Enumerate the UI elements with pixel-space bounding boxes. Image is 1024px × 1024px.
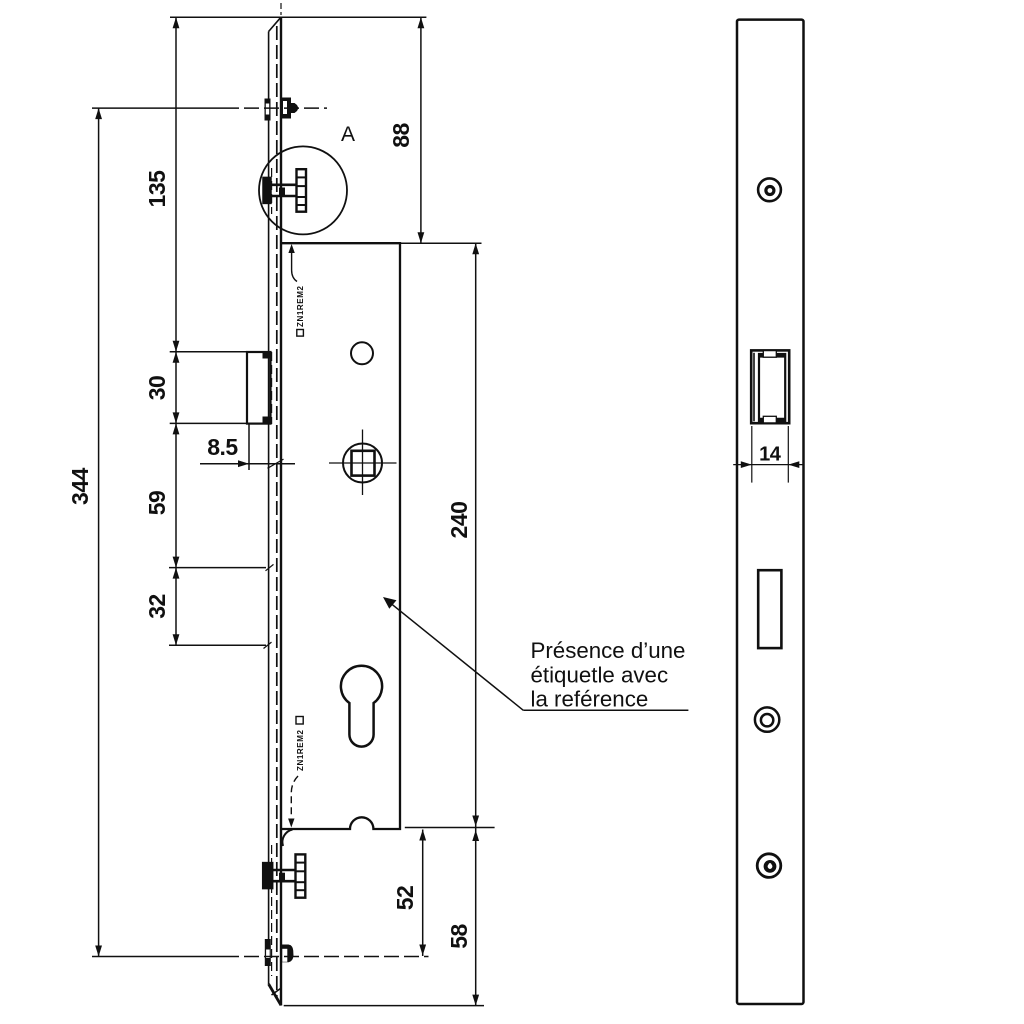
- svg-text:58: 58: [446, 924, 472, 949]
- svg-text:344: 344: [67, 467, 93, 505]
- svg-text:88: 88: [388, 123, 414, 148]
- svg-text:ZN1REM2: ZN1REM2: [296, 729, 305, 771]
- svg-text:32: 32: [144, 594, 170, 619]
- svg-text:Présence d’une: Présence d’une: [531, 638, 686, 663]
- svg-text:14: 14: [759, 444, 782, 466]
- svg-text:étiquetle avec: étiquetle avec: [531, 662, 669, 687]
- svg-text:30: 30: [144, 376, 170, 401]
- svg-text:240: 240: [446, 502, 472, 539]
- svg-text:135: 135: [144, 170, 170, 208]
- svg-text:52: 52: [392, 886, 418, 911]
- svg-text:ZN1REM2: ZN1REM2: [296, 285, 305, 327]
- svg-text:59: 59: [144, 491, 170, 516]
- svg-text:A: A: [341, 123, 355, 146]
- svg-text:la reférence: la reférence: [531, 687, 649, 712]
- svg-text:8.5: 8.5: [207, 434, 238, 460]
